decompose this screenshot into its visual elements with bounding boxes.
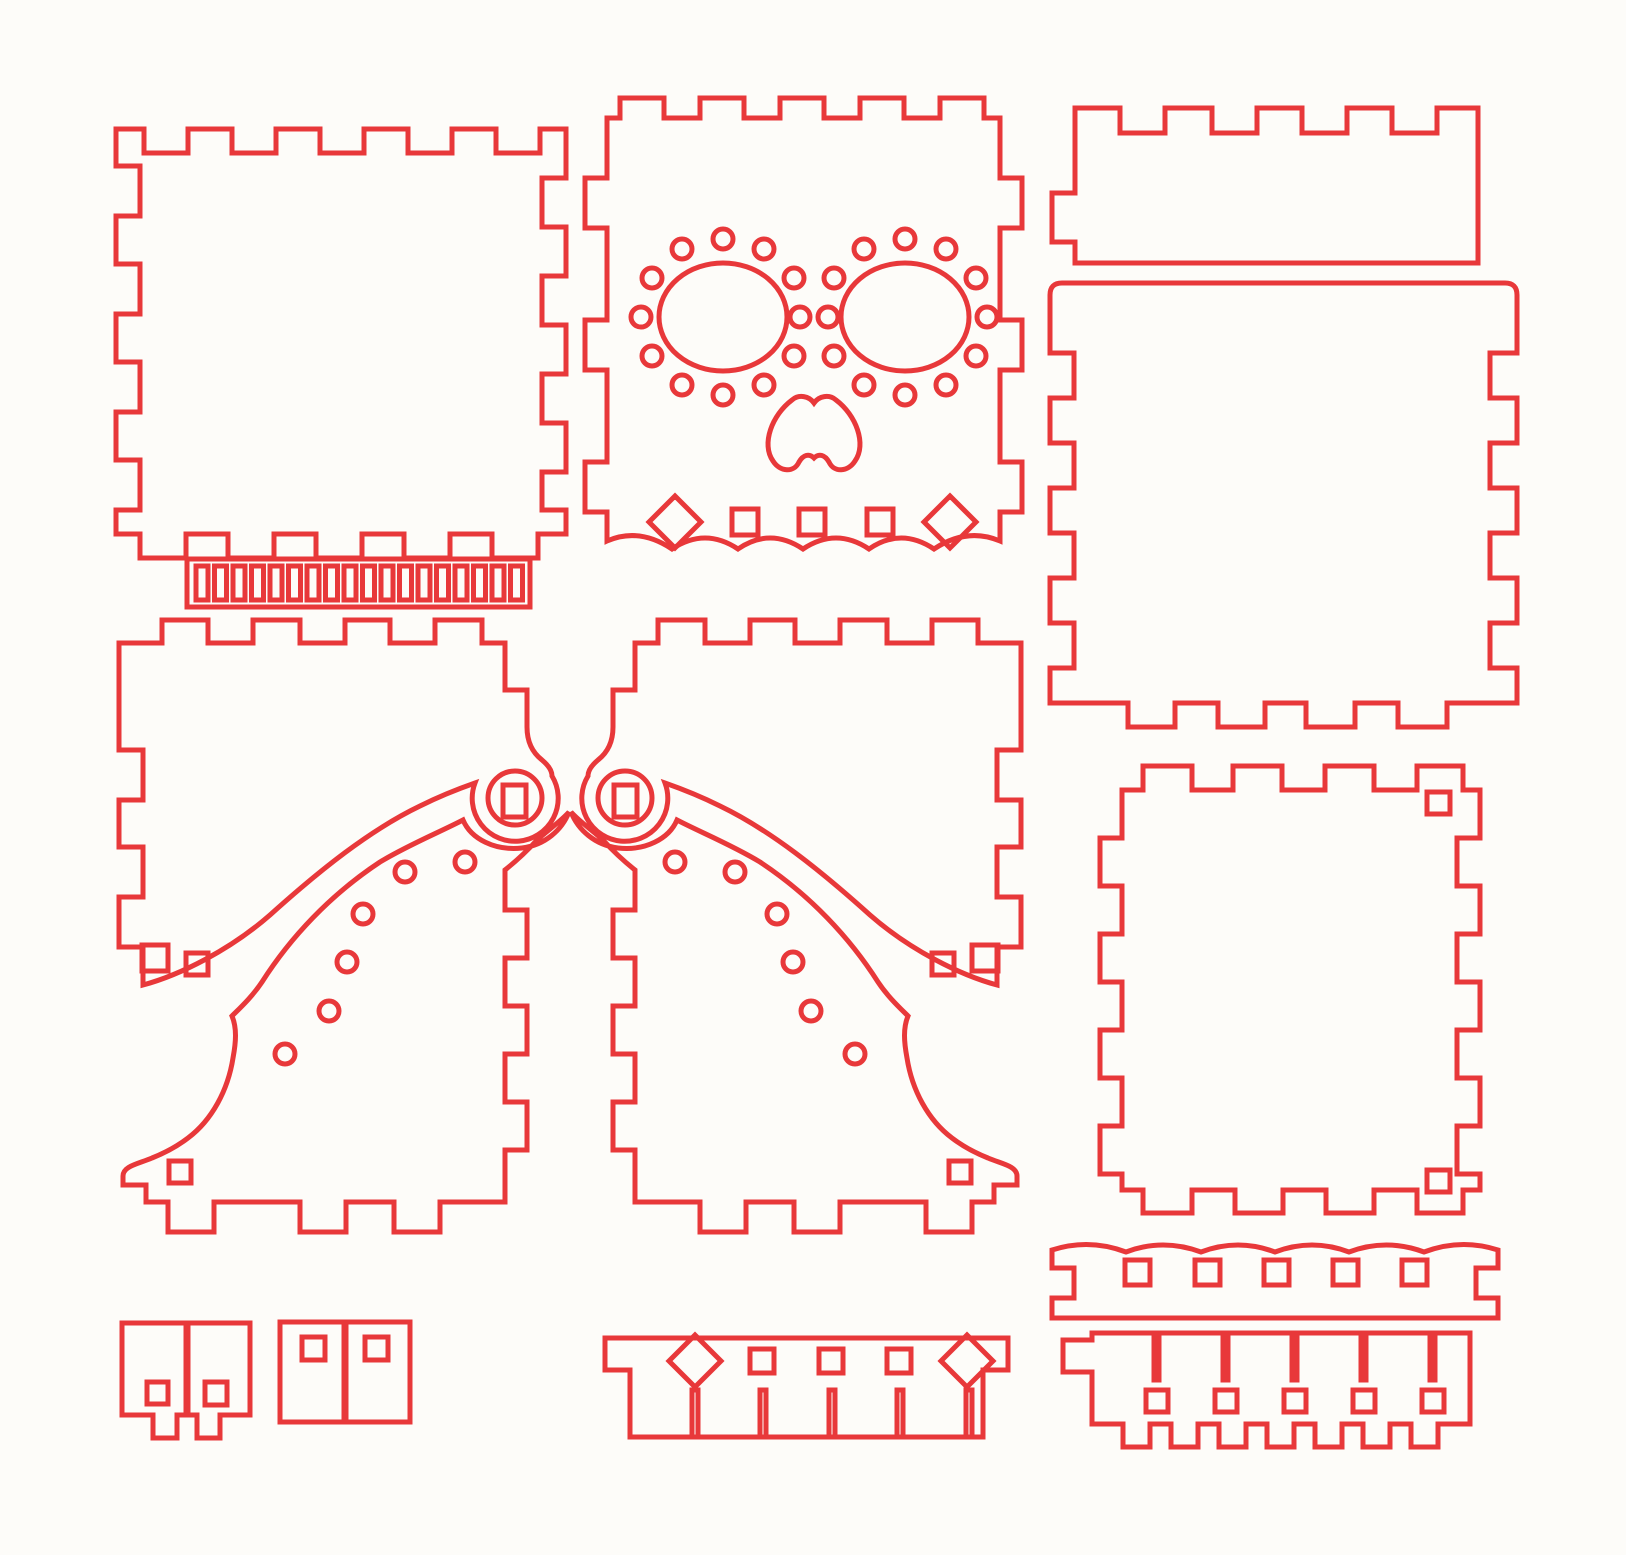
key-comb-holes — [1146, 1390, 1444, 1412]
slot-strip-slits — [692, 1390, 972, 1437]
slot-strip-holes — [669, 1335, 993, 1387]
panel-right-lower — [1100, 766, 1480, 1213]
skull-center-dots — [790, 307, 838, 327]
skull-eye-left — [659, 263, 787, 371]
panel-mid-left-holes — [142, 945, 208, 975]
key-comb — [1063, 1333, 1470, 1447]
foot-block-a1 — [122, 1323, 186, 1438]
panel-mid-right — [582, 620, 1021, 985]
panel-right-lower-holes — [1427, 792, 1450, 1192]
hinge-washer-right — [598, 771, 652, 825]
panel-mid-right-holes — [932, 945, 998, 975]
lasercut-sheet — [0, 0, 1626, 1555]
hinge-strip-slots — [196, 566, 523, 600]
bell-piece-left-holes — [169, 852, 475, 1183]
skull-nose — [768, 396, 860, 469]
foot-block-b1 — [280, 1322, 344, 1422]
skull-eye-right — [841, 263, 969, 371]
lid-side-panel — [1052, 108, 1478, 263]
hinge-washer-left — [488, 771, 542, 825]
foot-block-a2 — [188, 1323, 250, 1438]
panel-top-left — [116, 129, 566, 558]
lasercut-template-sheet — [0, 0, 1626, 1555]
panel-mid-left — [119, 620, 558, 985]
lid-top-panel — [1050, 283, 1517, 727]
scallop-strip — [1052, 1244, 1498, 1318]
bell-piece-right-holes — [665, 852, 971, 1183]
scallop-strip-holes — [1125, 1260, 1427, 1285]
key-comb-slits — [1154, 1333, 1435, 1380]
foot-block-b2 — [346, 1322, 410, 1422]
